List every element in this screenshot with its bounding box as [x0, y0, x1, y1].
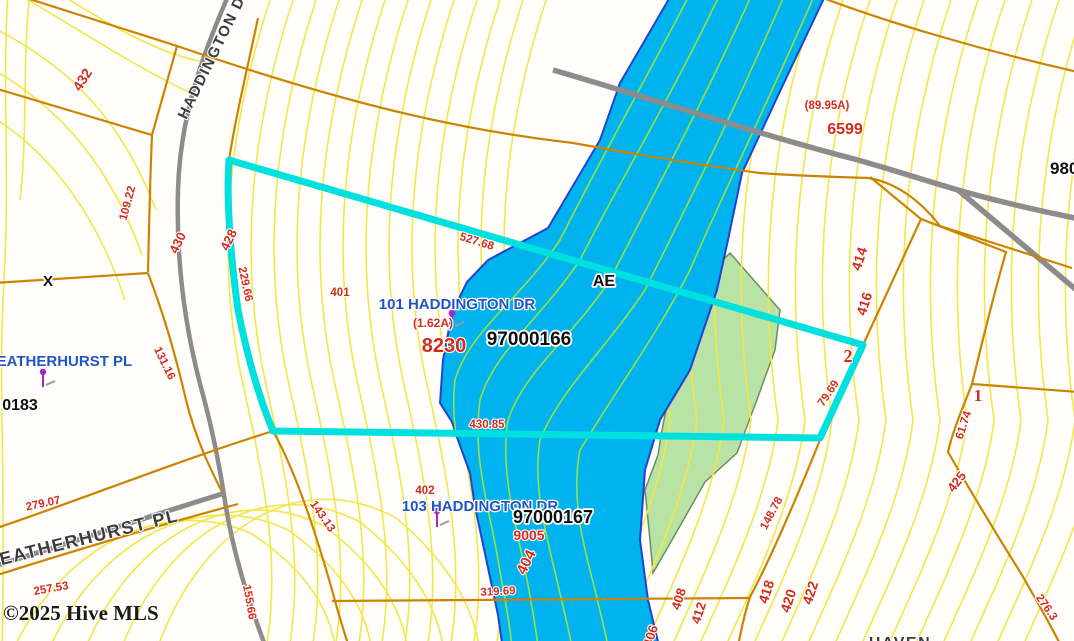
lot-number-8230: 8230: [422, 335, 467, 357]
street-label-haven-partial: HAVEN: [869, 635, 931, 641]
flood-zone-ae-label: AE: [593, 273, 616, 290]
street-label-heatherhurst-pl-blue: HEATHERHURST PL: [0, 353, 132, 370]
contour-label-402: 402: [415, 485, 434, 497]
area-label-89-95a: (89.95A): [805, 100, 850, 112]
dimension-319-69: 319.69: [480, 585, 516, 599]
parcel-id-97000166: 97000166: [487, 329, 572, 350]
contour-label-401: 401: [330, 287, 350, 299]
area-label-1-62a: (1.62A): [413, 316, 453, 330]
address-label-101-haddington: 101 HADDINGTON DR: [379, 296, 536, 313]
parcel-id-partial-980: 980: [1050, 159, 1074, 178]
gis-map-canvas[interactable]: 432 HADDINGTON DR 109.22 430 428 229.66 …: [0, 0, 1074, 641]
lot-number-6599: 6599: [827, 121, 863, 138]
map-svg: 432 HADDINGTON DR 109.22 430 428 229.66 …: [0, 0, 1074, 641]
x-marker: X: [43, 273, 53, 290]
parcel-id-partial-0183: 0183: [2, 397, 38, 414]
dimension-430-85: 430.85: [469, 419, 505, 431]
parcel-id-97000167: 97000167: [513, 507, 593, 527]
watermark: ©2025 Hive MLS: [3, 601, 159, 625]
lot-number-1: 1: [974, 386, 983, 405]
lot-number-9005: 9005: [513, 527, 544, 543]
lot-number-2: 2: [844, 346, 853, 366]
